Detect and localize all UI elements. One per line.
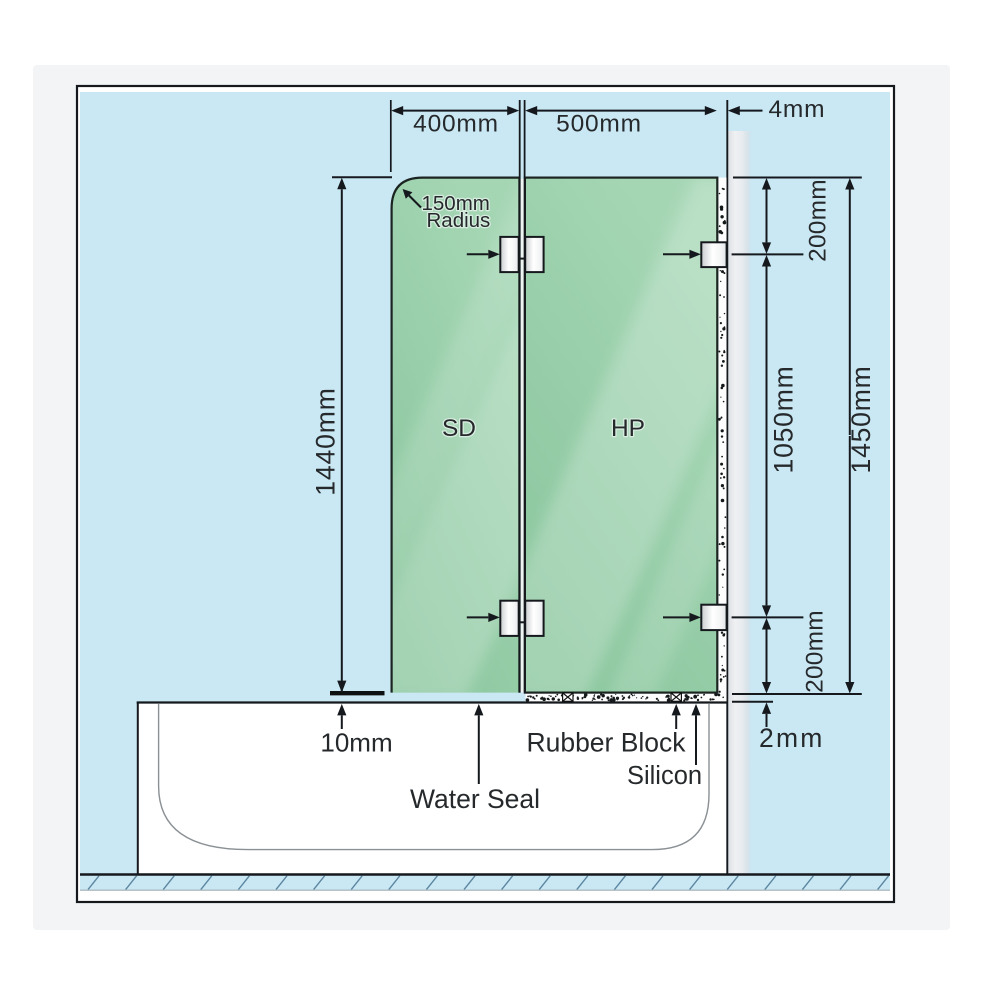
svg-text:4mm: 4mm <box>769 96 826 123</box>
svg-text:HP: HP <box>611 415 645 442</box>
svg-text:2mm: 2mm <box>759 723 825 753</box>
svg-text:Rubber Block: Rubber Block <box>526 728 686 758</box>
svg-text:10mm: 10mm <box>320 728 392 758</box>
svg-text:200mm: 200mm <box>805 179 832 262</box>
svg-text:500mm: 500mm <box>556 111 642 138</box>
svg-text:Silicon: Silicon <box>627 762 702 790</box>
svg-text:200mm: 200mm <box>802 610 829 693</box>
svg-text:SD: SD <box>442 415 476 442</box>
svg-text:Radius: Radius <box>427 209 491 232</box>
svg-text:1450mm: 1450mm <box>846 366 876 474</box>
svg-text:1050mm: 1050mm <box>768 366 798 474</box>
svg-text:1440mm: 1440mm <box>310 387 340 496</box>
svg-text:400mm: 400mm <box>413 111 499 138</box>
svg-text:Water Seal: Water Seal <box>410 784 540 814</box>
